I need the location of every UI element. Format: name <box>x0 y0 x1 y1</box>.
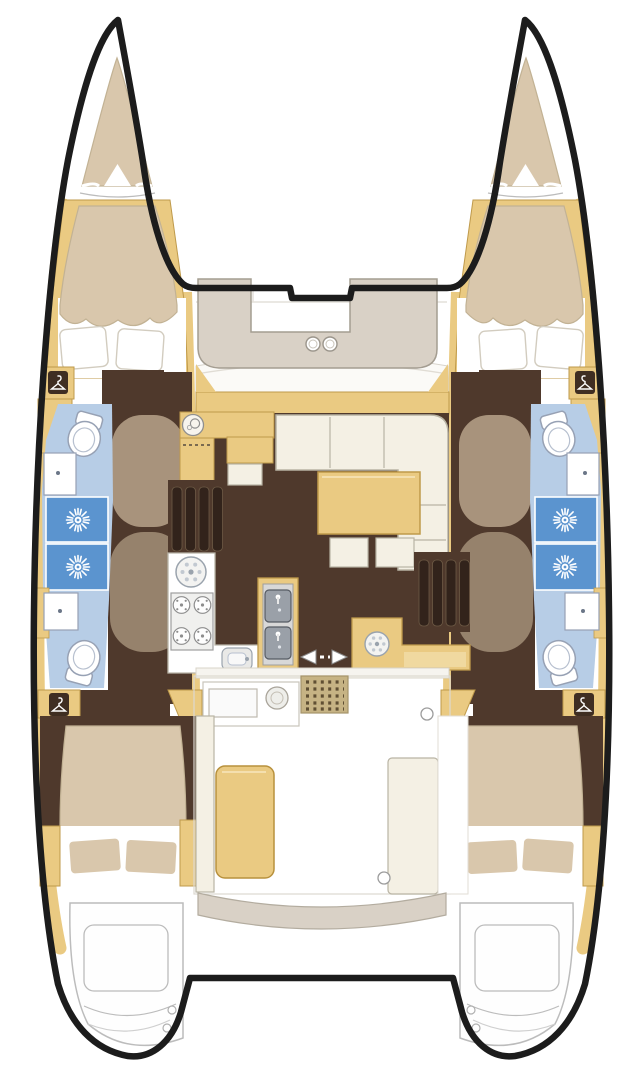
foredeck-seat <box>198 279 437 368</box>
port-bathroom <box>36 404 113 688</box>
ottoman <box>376 538 414 567</box>
nav-seat <box>228 464 262 485</box>
galley-island <box>258 578 298 670</box>
dining-table <box>318 472 420 534</box>
stairs-to-port-hull <box>168 480 223 555</box>
island-sink-bowl-icon <box>265 590 291 622</box>
outdoor-galley-counter <box>203 682 299 726</box>
galley-round-sink-icon <box>176 557 206 587</box>
cockpit-table <box>216 766 274 878</box>
catamaran-floor-plan <box>0 0 643 1080</box>
instrument-dial-icon <box>183 415 204 436</box>
deck-fitting <box>421 708 433 720</box>
port-aft-cabin <box>38 690 202 886</box>
starboard-bathroom <box>530 404 607 688</box>
cockpit-bench-port <box>196 716 214 892</box>
floor-plan-canvas <box>0 0 643 1080</box>
salon <box>168 412 470 678</box>
cockpit-module-starboard <box>388 758 438 894</box>
cup-holder <box>323 337 337 351</box>
wet-bar-sink-icon <box>365 632 389 656</box>
stern-bench <box>198 893 446 929</box>
galley-small-sink-icon <box>222 648 252 670</box>
cup-holder <box>306 337 320 351</box>
ottoman <box>330 538 368 567</box>
starboard-swim-platform <box>460 903 573 1045</box>
cockpit-walkway-starboard <box>438 716 468 894</box>
outdoor-sink-icon <box>266 687 288 709</box>
island-sink-bowl-icon <box>265 627 291 659</box>
stairs-to-starboard-hull <box>414 552 470 632</box>
port-swim-platform <box>70 903 183 1045</box>
deck-fitting <box>378 872 390 884</box>
doormat <box>301 676 348 713</box>
cockpit <box>194 676 468 929</box>
